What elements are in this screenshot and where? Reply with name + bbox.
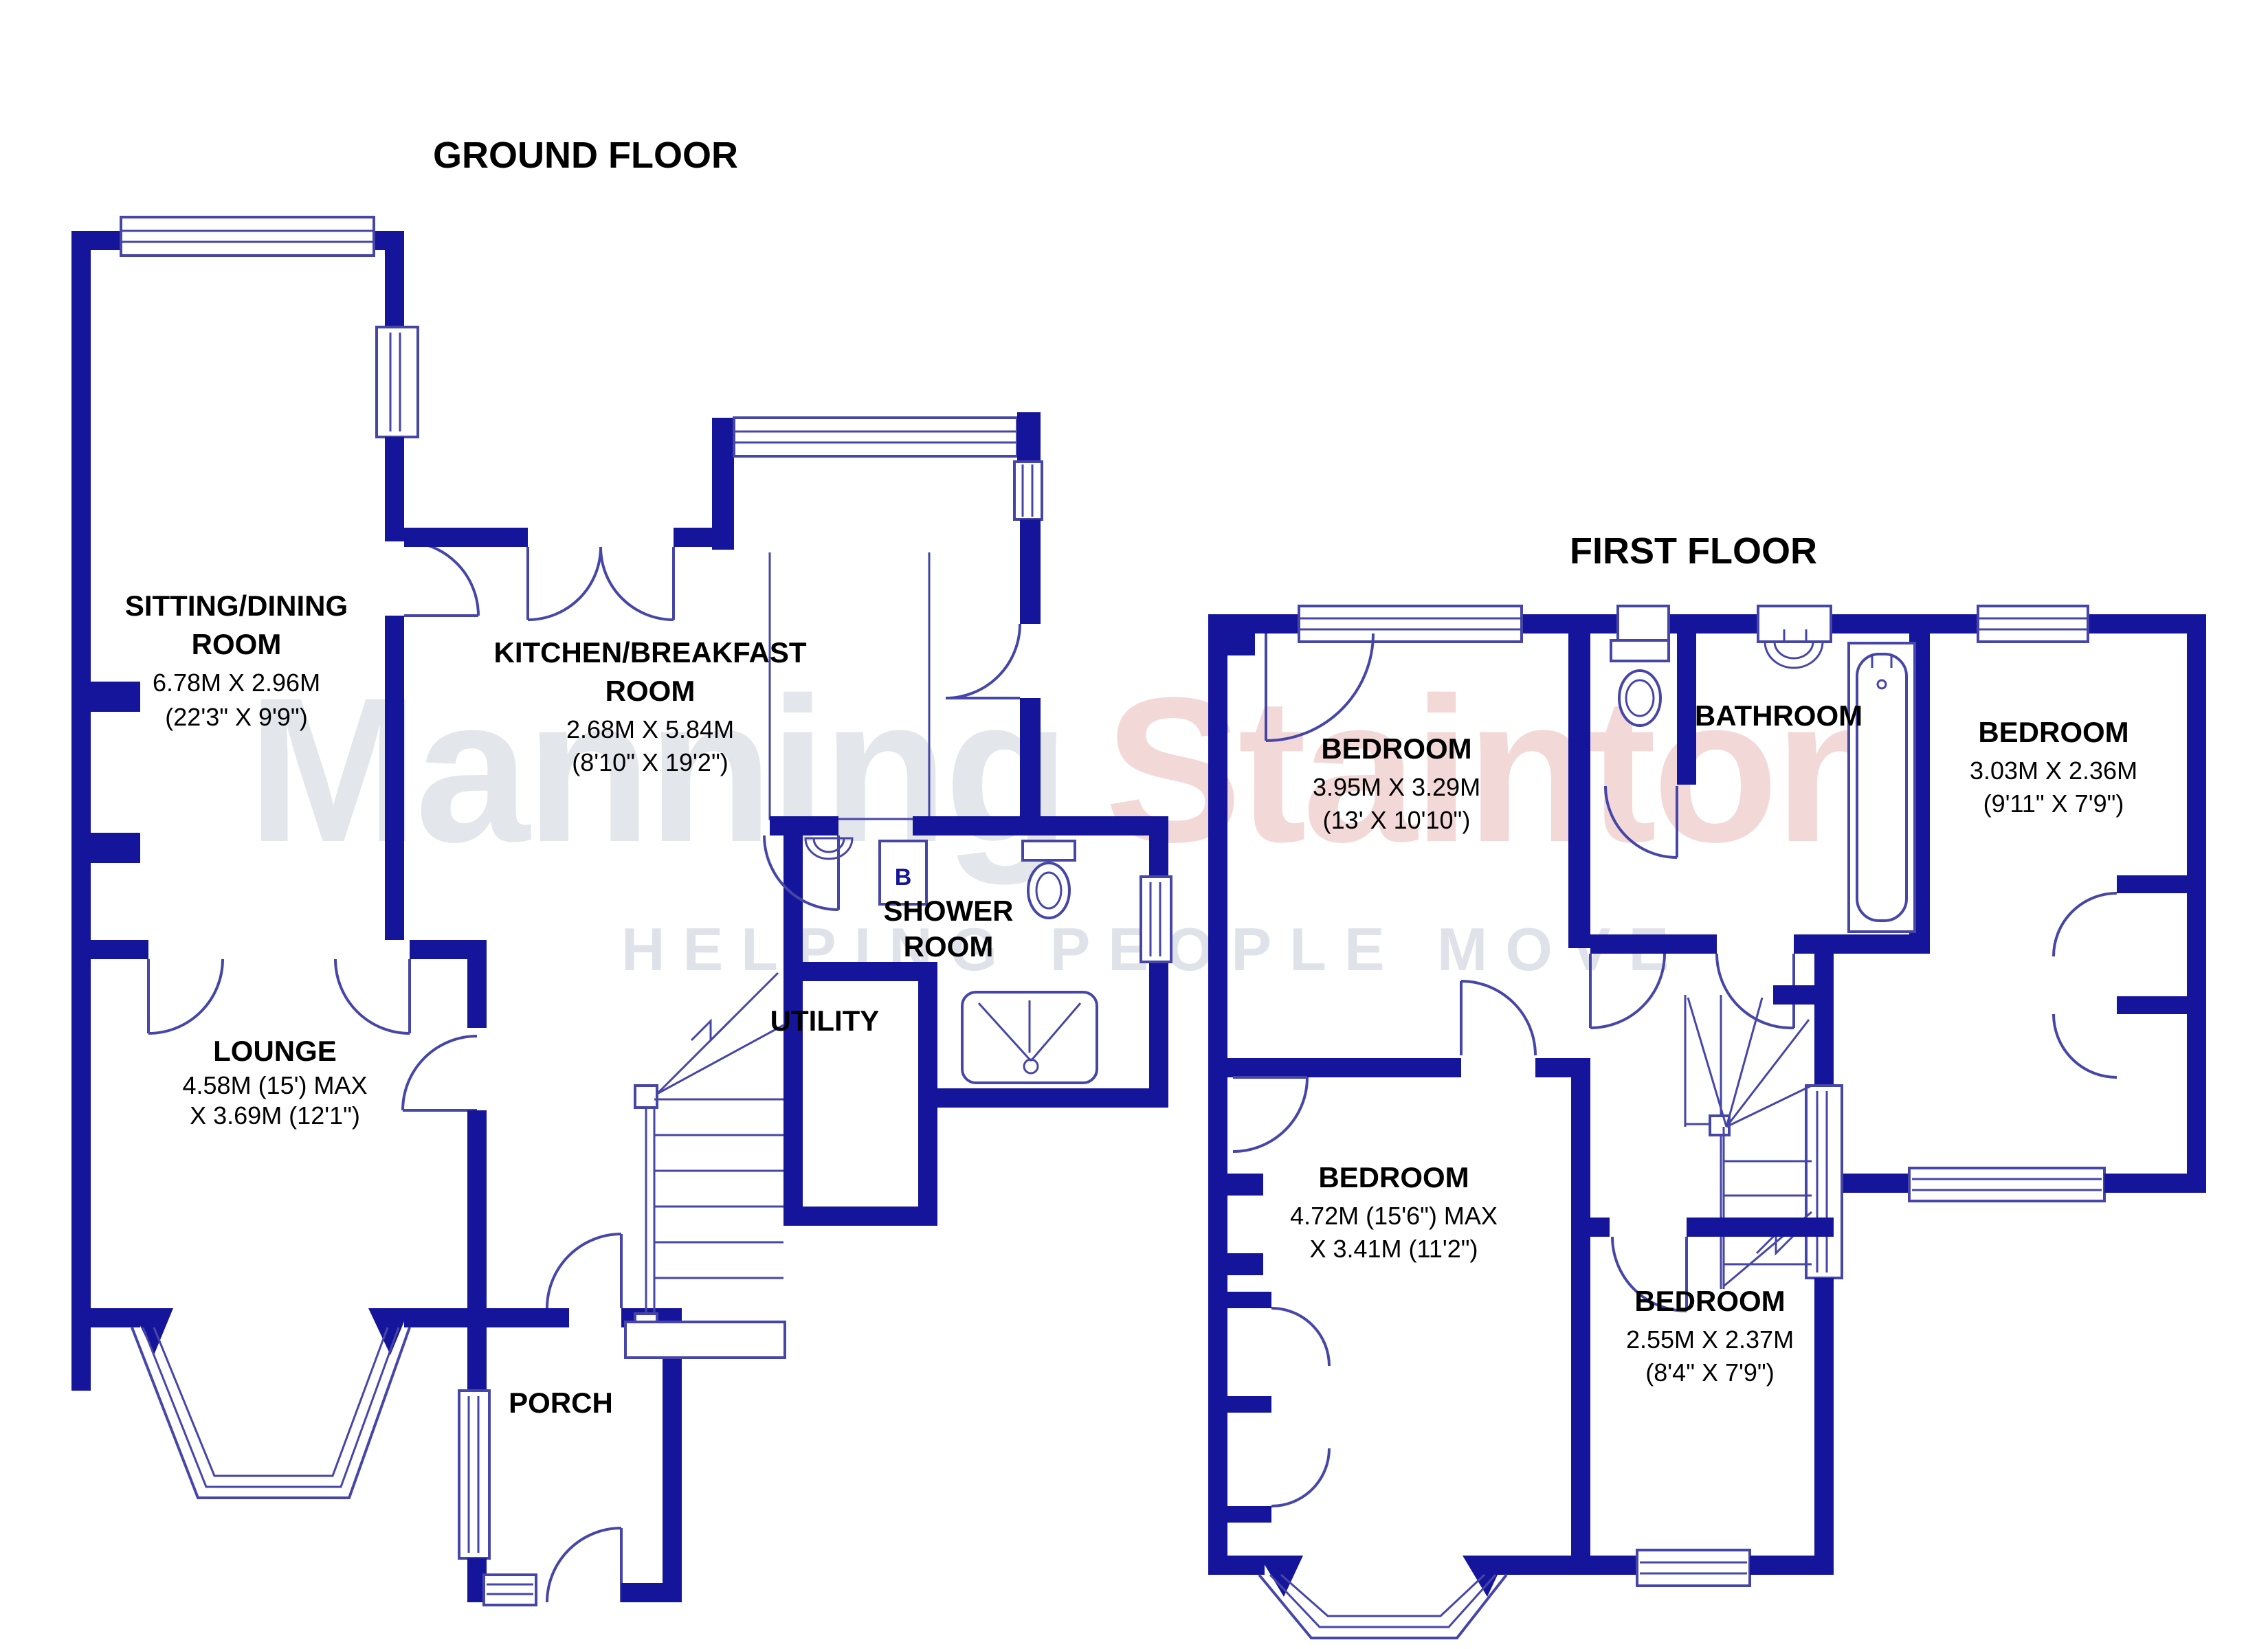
window-icon — [734, 418, 1017, 456]
room-lounge: LOUNGE 4.58M (15') MAX X 3.69M (12'1") — [71, 940, 487, 1498]
shower-tray-icon — [962, 992, 1097, 1083]
chimney-breast — [1227, 1174, 1263, 1196]
room-bedroom-rear: BEDROOM 4.72M (15'6") MAX X 3.41M (11'2"… — [1227, 981, 1590, 1638]
room-dims: X 3.69M (12'1") — [190, 1101, 360, 1130]
door-arc-icon — [403, 1036, 477, 1110]
room-dims: 2.68M X 5.84M — [566, 715, 734, 743]
room-dims: 3.03M X 2.36M — [1970, 756, 2137, 785]
room-bedroom-rear-right: BEDROOM 3.03M X 2.36M (9'11" X 7'9") — [1970, 716, 2187, 1077]
stairs-icon — [625, 835, 803, 1358]
boiler-label: B — [895, 864, 912, 890]
room-dims: (13' X 10'10") — [1323, 806, 1471, 834]
room-dims: 6.78M X 2.96M — [153, 669, 320, 697]
window-icon — [1909, 1168, 2104, 1201]
room-label: KITCHEN/BREAKFAST — [493, 636, 806, 669]
ground-floor-title: GROUND FLOOR — [433, 135, 738, 176]
room-label: SITTING/DINING — [125, 590, 348, 622]
window-icon — [459, 1391, 489, 1558]
room-label: PORCH — [509, 1387, 613, 1419]
room-dims: 2.55M X 2.37M — [1626, 1325, 1794, 1354]
room-dims: (8'4" X 7'9") — [1645, 1358, 1774, 1387]
room-bedroom-small: BEDROOM 2.55M X 2.37M (8'4" X 7'9") — [1590, 1218, 1834, 1387]
door-arc-icon — [404, 541, 478, 616]
bay-window-icon — [132, 1308, 410, 1498]
room-dims: 4.58M (15') MAX — [183, 1071, 368, 1099]
floorplan-page: ManningStainton HELPING PEOPLE MOVE GROU… — [0, 0, 2268, 1649]
room-dims: X 3.41M (11'2") — [1309, 1235, 1478, 1263]
room-label: BEDROOM — [1634, 1285, 1785, 1317]
window-icon — [1014, 462, 1042, 519]
window-icon — [484, 1575, 536, 1605]
room-dims: (9'11" X 7'9") — [1983, 789, 2124, 818]
room-label: BEDROOM — [1321, 732, 1471, 765]
room-dims: 3.95M X 3.29M — [1313, 773, 1480, 801]
floor-plan: ManningStainton HELPING PEOPLE MOVE GROU… — [0, 0, 2268, 1649]
door-arc-icon — [547, 1234, 621, 1308]
room-divider — [71, 940, 487, 1033]
room-label: UTILITY — [770, 1005, 880, 1037]
door-arc-icon — [547, 1528, 621, 1602]
door-arc-icon — [1271, 1308, 1329, 1506]
room-label: ROOM — [605, 675, 696, 707]
door-arc-icon — [2054, 893, 2117, 1077]
room-dims: (8'10" X 19'2") — [572, 748, 728, 776]
window-icon — [1141, 877, 1171, 962]
room-dims: (22'3" X 9'9") — [165, 703, 307, 731]
bay-window-icon — [1259, 1556, 1507, 1638]
room-label: ROOM — [904, 930, 994, 963]
chimney-breast — [91, 682, 140, 712]
room-label: LOUNGE — [213, 1035, 337, 1067]
toilet-icon — [1023, 841, 1075, 918]
room-dims: 4.72M (15'6") MAX — [1290, 1202, 1498, 1230]
room-label: ROOM — [192, 628, 282, 660]
room-label: SHOWER — [884, 895, 1014, 927]
room-porch: PORCH — [459, 1234, 682, 1605]
chimney-breast — [1227, 1253, 1263, 1275]
first-floor-title: FIRST FLOOR — [1570, 530, 1817, 572]
window-icon — [1637, 1550, 1750, 1586]
window-icon — [1806, 1086, 1842, 1278]
bath-icon — [1849, 643, 1915, 932]
window-icon — [377, 327, 418, 437]
room-label: BEDROOM — [1318, 1161, 1469, 1193]
window-icon — [121, 217, 374, 256]
chimney-breast — [91, 833, 140, 863]
door-arc-icon — [148, 959, 410, 1033]
room-label: BATHROOM — [1695, 699, 1863, 732]
room-label: BEDROOM — [1978, 716, 2128, 748]
french-doors-icon — [528, 547, 674, 620]
